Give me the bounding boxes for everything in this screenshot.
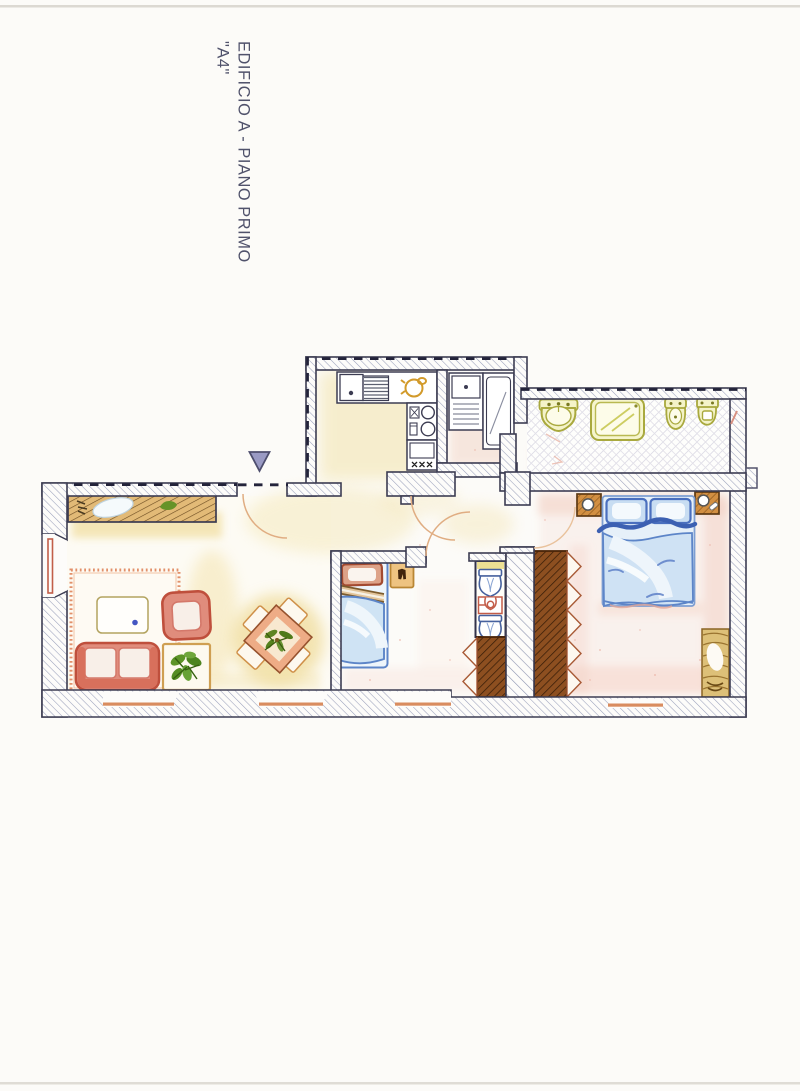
svg-text:"A4": "A4" [213,41,231,75]
svg-text:EDIFICIO A - PIANO PRIMO: EDIFICIO A - PIANO PRIMO [235,41,253,263]
